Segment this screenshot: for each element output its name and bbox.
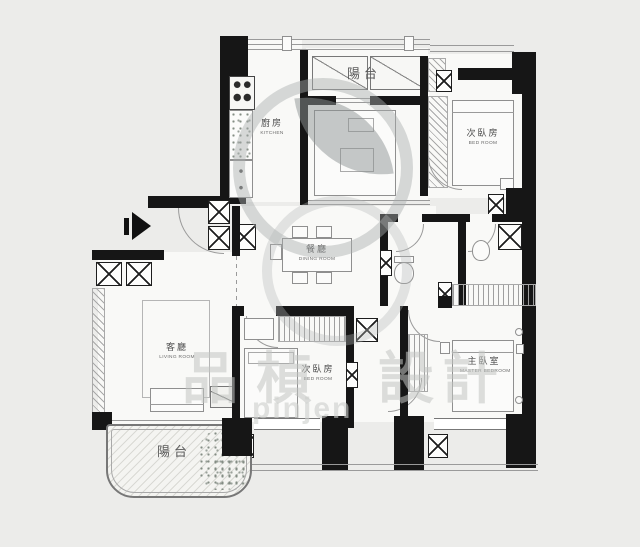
partition-line: [236, 256, 237, 306]
room-label-zh: 客廳: [148, 342, 206, 354]
door-gap: [470, 214, 492, 222]
sofa: [150, 388, 204, 412]
nightstand: [440, 342, 450, 354]
balcony-rail-line: [246, 39, 430, 40]
stove: [229, 76, 255, 110]
wall: [458, 68, 516, 80]
toilet-tank: [394, 256, 414, 263]
balcony-rail-line: [246, 49, 430, 50]
wall: [232, 206, 240, 256]
room-label-zh: 陽台: [146, 444, 202, 461]
sliding-door-line: [336, 102, 370, 103]
balcony-rail-line: [246, 44, 430, 45]
room-label-balcony-top: 陽台: [332, 66, 396, 83]
wall-light: [515, 396, 523, 404]
room-label-dining: 餐廳 DINING ROOM: [286, 244, 348, 263]
low-table: [340, 148, 374, 172]
sofa-back-line: [150, 404, 204, 405]
desk: [244, 318, 274, 340]
wall: [232, 306, 240, 428]
shower-fixture: [498, 224, 522, 250]
room-label-zh: 陽台: [332, 66, 396, 83]
window-line: [430, 51, 514, 52]
dining-chair: [316, 226, 332, 238]
column-marker: [428, 434, 448, 458]
room-label-zh: 次臥房: [292, 364, 344, 376]
base-line: [240, 470, 538, 471]
room-label-en: DINING ROOM: [292, 256, 342, 262]
door-gap: [244, 306, 276, 316]
column-marker: [208, 200, 230, 224]
room-label-bedroom-middle: 次臥房 BED ROOM: [292, 364, 344, 383]
wall: [420, 56, 428, 196]
wardrobe-hanging: [408, 334, 428, 392]
wall: [522, 52, 536, 446]
washer: [356, 318, 378, 342]
rail-post: [404, 36, 414, 51]
door-gap: [398, 214, 422, 222]
room-label-living: 客廳 LIVING ROOM: [148, 342, 206, 361]
column-marker: [436, 70, 452, 92]
room-label-balcony-bottom: 陽台: [146, 444, 202, 461]
column-marker: [488, 194, 504, 216]
entry-arrow-icon: [122, 212, 156, 242]
rail-post: [282, 36, 292, 51]
sliding-door-line: [336, 98, 370, 99]
room-label-en: KITCHEN: [253, 130, 291, 136]
column-marker: [126, 262, 152, 286]
dining-chair: [270, 244, 282, 260]
wall: [220, 78, 229, 190]
tv-wall-cabinet: [92, 288, 105, 414]
kitchen-sink: [229, 160, 253, 198]
wall-corner: [506, 414, 536, 468]
floor-line: [308, 200, 430, 201]
room-label-zh: 次臥房: [452, 128, 514, 140]
column-marker: [346, 362, 358, 388]
window: [434, 418, 506, 430]
toilet: [472, 240, 490, 261]
wall: [400, 306, 408, 420]
room-label-zh: 主臥室: [454, 356, 514, 368]
dining-chair: [292, 272, 308, 284]
room-label-en: BED ROOM: [297, 376, 339, 382]
bed-line: [452, 112, 514, 113]
column-marker: [96, 262, 122, 286]
column-marker: [380, 250, 392, 276]
balcony-door-line: [112, 420, 232, 421]
floor-plan: 陽台 廚房 KITCHEN 次臥房 BED ROOM 餐廳 DINING ROO…: [0, 0, 640, 547]
bed: [452, 340, 514, 412]
room-label-zh: 餐廳: [286, 244, 348, 256]
room-label-zh: 廚房: [248, 118, 296, 130]
window-line: [430, 45, 514, 46]
toilet: [394, 262, 414, 284]
window: [254, 418, 320, 430]
bed-pillow: [248, 352, 294, 364]
floor-line: [308, 204, 430, 205]
room-label-kitchen: 廚房 KITCHEN: [248, 118, 296, 137]
wall-pier: [322, 416, 348, 470]
dining-chair: [292, 226, 308, 238]
wall: [300, 50, 308, 205]
room-label-en: BED ROOM: [458, 140, 508, 146]
wall-corner: [222, 418, 252, 456]
bed-line: [452, 352, 514, 353]
dining-chair: [316, 272, 332, 284]
plants: [212, 452, 246, 490]
base-line: [240, 464, 538, 465]
room-label-master-bedroom: 主臥室 MASTER BEDROOM: [454, 356, 514, 375]
room-label-en: MASTER BEDROOM: [460, 368, 508, 374]
column-marker: [208, 226, 230, 250]
wall: [438, 296, 452, 308]
room-label-en: LIVING ROOM: [154, 354, 200, 360]
nightstand: [516, 344, 524, 354]
wall-light: [515, 328, 523, 336]
wardrobe-hanging: [452, 284, 536, 306]
daybed-pillow: [348, 118, 374, 132]
wardrobe-hanging: [278, 316, 346, 342]
wall: [92, 250, 164, 260]
room-label-bedroom-right: 次臥房 BED ROOM: [452, 128, 514, 147]
wall-corner: [220, 36, 248, 78]
wall-pier: [394, 416, 424, 470]
